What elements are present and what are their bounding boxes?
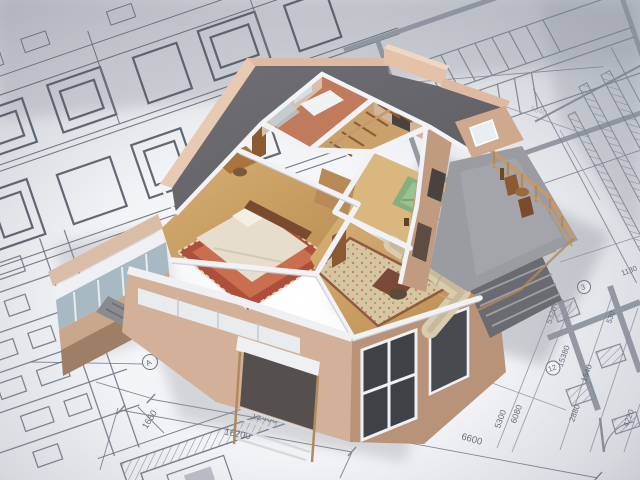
axis-marker-12: 12: [546, 361, 560, 375]
coffee-table: [389, 289, 407, 300]
scene-canvas: 2100 5300 6080 5320 15380 1540 2880 4220…: [0, 0, 640, 480]
architectural-visualization: 2100 5300 6080 5320 15380 1540 2880 4220…: [0, 0, 640, 480]
parapet-top: [247, 58, 388, 66]
